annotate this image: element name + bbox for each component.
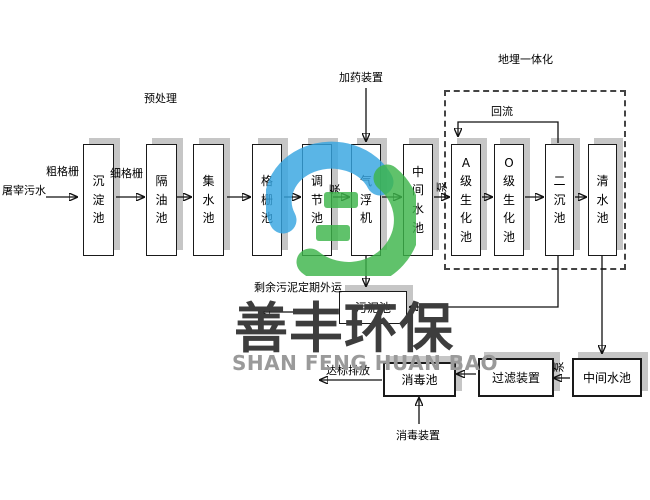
tank-intermediate-2: 中间水池 — [572, 358, 642, 397]
tank-screen: 格栅池 — [252, 144, 282, 256]
tank-collecting: 集水池 — [193, 144, 224, 256]
shanfeng-logo — [266, 126, 416, 276]
coarse-screen-label: 粗格栅 — [46, 163, 79, 179]
fine-screen-label: 细格栅 — [110, 165, 143, 181]
tank-sedimentation-label: 沉淀池 — [92, 172, 106, 228]
pretreatment-label: 预处理 — [144, 90, 177, 106]
tank-o-biochemical-label: O级生化池 — [502, 154, 516, 247]
tank-intermediate-1: 中间水池 — [403, 144, 433, 256]
buried-integrated-label: 地埋一体化 — [498, 51, 553, 67]
tank-regulating-label: 调节池 — [310, 172, 324, 228]
tank-screen-label: 格栅池 — [260, 172, 274, 228]
tank-a-biochemical: A级生化池 — [451, 144, 481, 256]
tank-secondary-sedimentation: 二沉池 — [545, 144, 574, 256]
pump1-label: 泵 — [327, 184, 343, 195]
tank-oil-separator-label: 隔油池 — [155, 172, 169, 228]
process-flow-diagram: 屠宰污水 粗格栅 细格栅 预处理 加药装置 地埋一体化 回流 泵 泵 泵 剩余污… — [0, 0, 650, 500]
source-water-label: 屠宰污水 — [2, 182, 46, 198]
disinfection-device-label: 消毒装置 — [396, 427, 440, 443]
tank-regulating: 调节池 — [302, 144, 332, 256]
tank-intermediate-1-label: 中间水池 — [411, 163, 425, 237]
tank-collecting-label: 集水池 — [202, 172, 216, 228]
tank-o-biochemical: O级生化池 — [494, 144, 524, 256]
pump2-label: 泵 — [434, 182, 450, 193]
tank-air-flotation-label: 气浮机 — [359, 172, 373, 228]
tank-clear-water: 清水池 — [588, 144, 617, 256]
tank-secondary-sedimentation-label: 二沉池 — [553, 172, 567, 228]
backflow-label: 回流 — [491, 103, 513, 119]
tank-sedimentation: 沉淀池 — [83, 144, 114, 256]
tank-clear-water-label: 清水池 — [596, 172, 610, 228]
filter-device-label: 过滤装置 — [492, 369, 540, 386]
watermark-english: SHAN FENG HUAN BAO — [232, 351, 498, 375]
tank-a-biochemical-label: A级生化池 — [459, 154, 473, 247]
tank-air-flotation: 气浮机 — [351, 144, 381, 256]
pump3-label: 泵 — [551, 362, 567, 373]
dosing-device-label: 加药装置 — [339, 69, 383, 85]
tank-intermediate-2-label: 中间水池 — [583, 369, 631, 386]
tank-oil-separator: 隔油池 — [146, 144, 177, 256]
